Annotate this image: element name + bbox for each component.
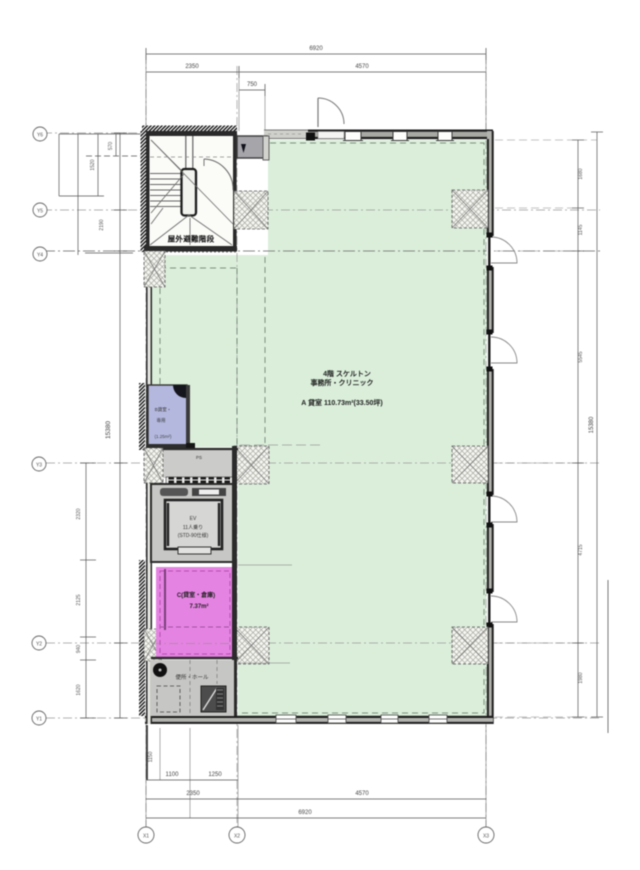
svg-text:1250: 1250 [208,772,222,778]
svg-text:7.37m²: 7.37m² [189,603,208,610]
svg-text:X3: X3 [483,834,489,840]
svg-text:C(貸室・倉庫): C(貸室・倉庫) [177,591,215,599]
svg-text:(1.25m²): (1.25m²) [154,434,172,439]
svg-text:1150: 1150 [148,751,154,762]
svg-text:(STD-90仕様): (STD-90仕様) [178,532,209,539]
svg-text:2190: 2190 [99,219,105,230]
svg-text:11人乗り: 11人乗り [183,524,203,531]
svg-text:1980: 1980 [578,672,584,683]
svg-text:6920: 6920 [309,46,323,52]
svg-text:X2: X2 [234,834,240,840]
svg-text:X1: X1 [143,834,149,840]
svg-text:Y3: Y3 [36,463,42,469]
svg-text:750: 750 [247,82,258,88]
svg-text:1520: 1520 [90,159,96,170]
svg-text:屋外避難階段: 屋外避難階段 [168,234,215,244]
svg-text:PS: PS [196,455,202,460]
svg-text:2350: 2350 [186,791,200,797]
svg-text:Y2: Y2 [36,642,42,648]
svg-text:事務所・クリニック: 事務所・クリニック [311,378,374,387]
svg-text:2125: 2125 [76,594,82,605]
svg-text:A 貸室 110.73m²(33.50坪): A 貸室 110.73m²(33.50坪) [301,398,382,407]
svg-text:Y5: Y5 [37,209,43,215]
svg-text:4570: 4570 [355,64,369,70]
svg-text:専用: 専用 [157,417,166,424]
svg-text:1680: 1680 [578,168,584,179]
svg-text:5545: 5545 [578,351,584,362]
svg-text:6920: 6920 [298,810,312,816]
svg-text:1145: 1145 [578,224,584,235]
svg-text:1620: 1620 [76,684,82,695]
svg-text:2350: 2350 [185,64,199,70]
svg-text:940: 940 [76,645,82,654]
svg-text:15380: 15380 [105,421,112,439]
svg-text:4570: 4570 [355,791,369,797]
svg-text:Y1: Y1 [36,717,42,723]
svg-text:4階 スケルトン: 4階 スケルトン [323,369,371,378]
svg-text:2320: 2320 [76,508,82,519]
svg-text:Y4: Y4 [37,253,43,259]
svg-text:1100: 1100 [166,772,180,778]
svg-text:4715: 4715 [578,544,584,555]
svg-text:B貸室・: B貸室・ [155,406,172,413]
svg-text:15380: 15380 [589,416,595,433]
svg-text:EV: EV [190,516,197,522]
svg-text:便所・ホール: 便所・ホール [175,673,209,681]
svg-text:570: 570 [108,142,114,151]
svg-text:Y6: Y6 [37,133,43,139]
